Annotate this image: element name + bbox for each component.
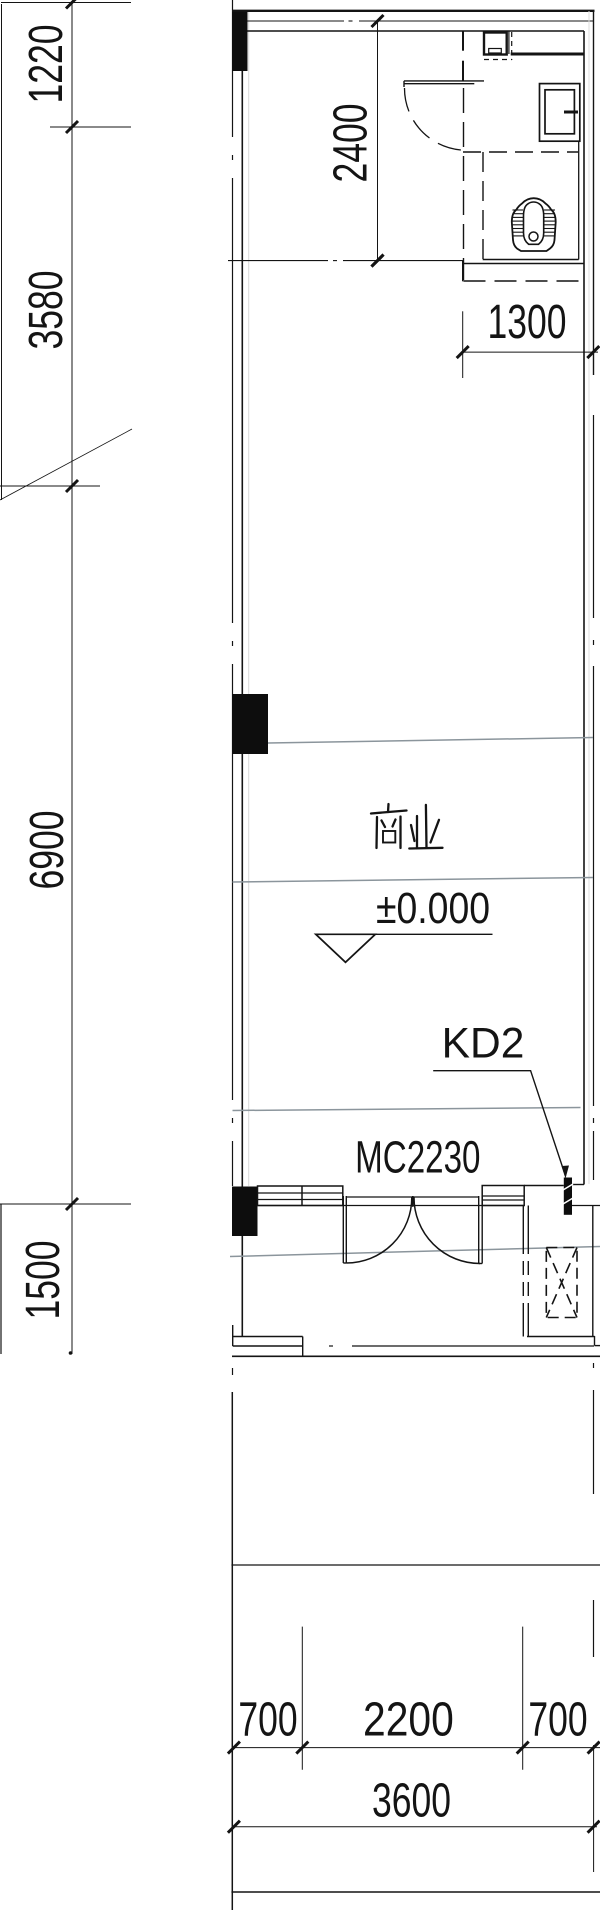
svg-text:1300: 1300 [487,295,566,348]
svg-text:1500: 1500 [16,1240,69,1319]
svg-text:6900: 6900 [20,810,73,889]
svg-text:2200: 2200 [363,1694,454,1747]
svg-text:2400: 2400 [323,103,376,182]
svg-text:1220: 1220 [19,24,72,103]
svg-text:±0.000: ±0.000 [376,883,490,933]
svg-text:3580: 3580 [19,270,72,349]
svg-text:3600: 3600 [372,1773,451,1826]
svg-text:700: 700 [238,1693,297,1746]
svg-text:KD2: KD2 [442,1021,525,1068]
svg-text:700: 700 [528,1693,587,1746]
svg-text:MC2230: MC2230 [355,1133,480,1183]
